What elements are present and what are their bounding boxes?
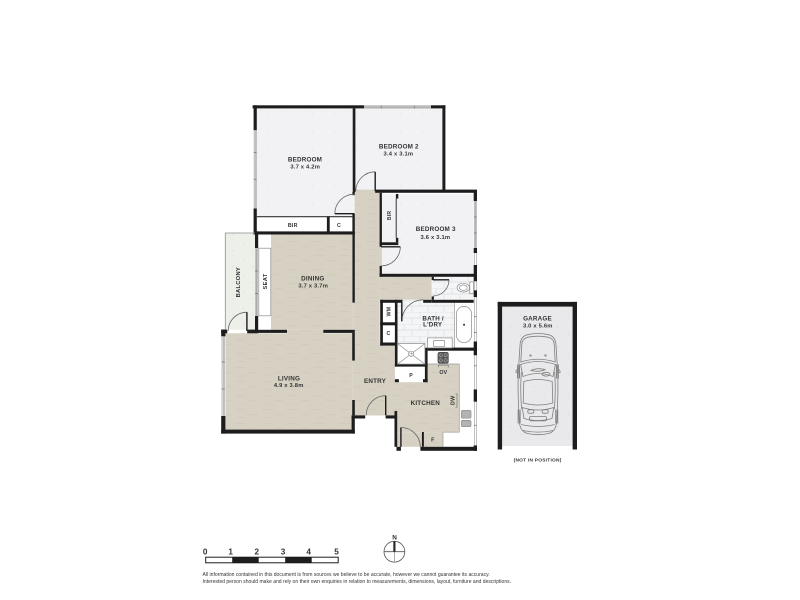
svg-text:BIR: BIR xyxy=(288,223,298,229)
svg-text:DW: DW xyxy=(451,396,457,405)
svg-text:C: C xyxy=(387,331,391,337)
svg-text:4.9 x 3.8m: 4.9 x 3.8m xyxy=(274,383,304,389)
svg-text:BEDROOM 3: BEDROOM 3 xyxy=(416,226,456,233)
svg-text:BIR: BIR xyxy=(387,211,393,221)
svg-text:3.0 x 5.6m: 3.0 x 5.6m xyxy=(523,323,553,329)
svg-text:WM: WM xyxy=(386,306,392,316)
svg-text:OV: OV xyxy=(439,370,447,376)
svg-text:KITCHEN: KITCHEN xyxy=(411,400,441,407)
svg-text:Interested person should make: Interested person should make and rely o… xyxy=(203,579,512,585)
svg-text:LIVING: LIVING xyxy=(278,375,300,382)
svg-text:SEAT: SEAT xyxy=(263,273,269,289)
svg-text:All information contained in t: All information contained in this docume… xyxy=(203,572,490,578)
svg-text:F: F xyxy=(431,437,435,443)
svg-text:3.7 x 4.2m: 3.7 x 4.2m xyxy=(290,164,320,170)
svg-text:DINING: DINING xyxy=(301,275,324,282)
svg-text:BEDROOM: BEDROOM xyxy=(288,157,322,164)
svg-text:3.6 x 3.1m: 3.6 x 3.1m xyxy=(421,235,451,241)
svg-text:N: N xyxy=(392,534,397,541)
svg-text:P: P xyxy=(409,373,413,379)
svg-text:0: 0 xyxy=(203,547,208,556)
svg-text:4: 4 xyxy=(306,547,311,556)
svg-text:ENTRY: ENTRY xyxy=(364,378,387,385)
svg-text:L'DRY: L'DRY xyxy=(423,322,443,329)
svg-text:2: 2 xyxy=(255,547,260,556)
svg-text:(NOT IN POSITION): (NOT IN POSITION) xyxy=(514,458,562,464)
svg-text:3: 3 xyxy=(281,547,286,556)
svg-text:3.4 x 3.1m: 3.4 x 3.1m xyxy=(384,151,414,157)
svg-text:C: C xyxy=(337,223,341,229)
svg-text:5: 5 xyxy=(334,547,339,556)
svg-text:BEDROOM 2: BEDROOM 2 xyxy=(379,144,419,151)
svg-text:3.7 x 3.7m: 3.7 x 3.7m xyxy=(298,283,328,289)
svg-text:GARAGE: GARAGE xyxy=(523,315,552,322)
svg-text:BALCONY: BALCONY xyxy=(236,267,242,297)
svg-text:1: 1 xyxy=(228,547,233,556)
